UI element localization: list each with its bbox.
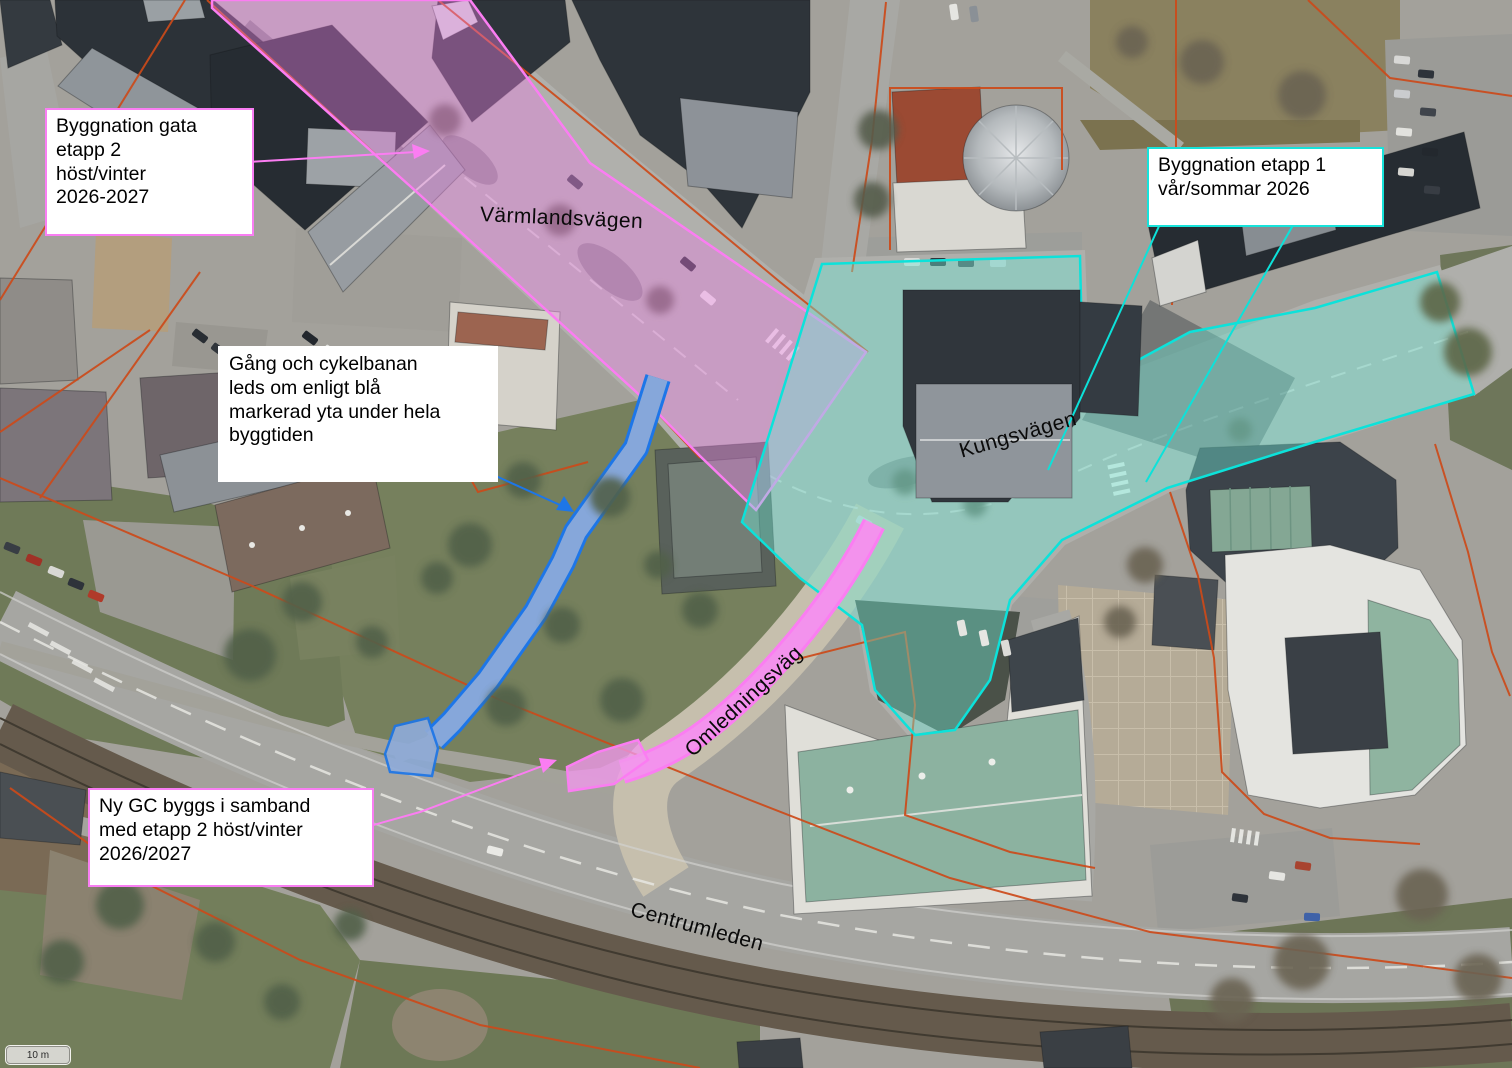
annotation-etapp1: Byggnation etapp 1 vår/sommar 2026 [1147,147,1384,227]
annotation-line: vår/sommar 2026 [1158,178,1373,202]
annotation-line: 2026/2027 [99,843,363,867]
annotation-etapp2: Byggnation gata etapp 2 höst/vinter 2026… [45,108,254,236]
annotation-line: med etapp 2 höst/vinter [99,819,363,843]
annotation-gc-detour: Gång och cykelbanan leds om enligt blå m… [218,346,498,482]
annotation-line: Ny GC byggs i samband [99,795,363,819]
annotation-line: etapp 2 [56,139,243,163]
annotation-line: höst/vinter [56,163,243,187]
annotation-line: 2026-2027 [56,186,243,210]
annotation-line: Byggnation etapp 1 [1158,154,1373,178]
annotation-line: markerad yta under hela [229,401,487,425]
annotation-line: byggtiden [229,424,487,448]
annotation-line: Byggnation gata [56,115,243,139]
annotation-ny-gc: Ny GC byggs i samband med etapp 2 höst/v… [88,788,374,887]
annotation-line: Gång och cykelbanan [229,353,487,377]
annotation-line: leds om enligt blå [229,377,487,401]
construction-phase-map: Byggnation gata etapp 2 höst/vinter 2026… [0,0,1512,1068]
scale-bar: 10 m [6,1046,70,1064]
